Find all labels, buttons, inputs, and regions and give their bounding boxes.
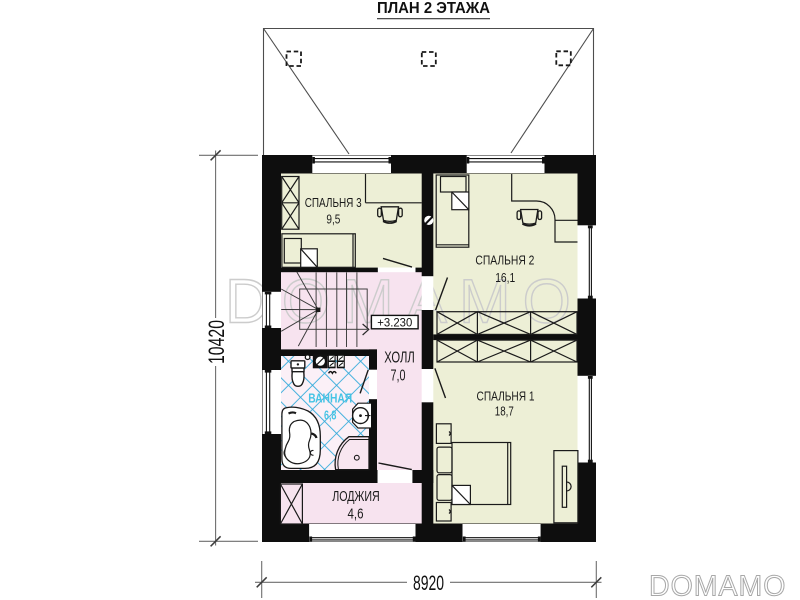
svg-text:ВАННАЯ: ВАННАЯ	[308, 390, 352, 405]
svg-text:8920: 8920	[413, 572, 444, 595]
svg-text:10420: 10420	[204, 320, 229, 364]
svg-text:СПАЛЬНЯ 2: СПАЛЬНЯ 2	[475, 253, 534, 268]
svg-text:DOMAMO: DOMAMO	[649, 571, 786, 600]
svg-text:4,6: 4,6	[348, 505, 364, 522]
svg-text:ПЛАН 2 ЭТАЖА: ПЛАН 2 ЭТАЖА	[377, 0, 490, 17]
svg-text:6,8: 6,8	[324, 407, 337, 422]
svg-text:СПАЛЬНЯ 3: СПАЛЬНЯ 3	[305, 195, 362, 210]
svg-text:+3.230: +3.230	[377, 316, 412, 330]
svg-text:9,5: 9,5	[326, 212, 340, 227]
svg-text:7,0: 7,0	[391, 368, 406, 385]
svg-text:16,1: 16,1	[495, 270, 515, 285]
svg-text:СПАЛЬНЯ 1: СПАЛЬНЯ 1	[477, 389, 535, 404]
svg-text:ЛОДЖИЯ: ЛОДЖИЯ	[332, 488, 380, 505]
svg-text:ХОЛЛ: ХОЛЛ	[384, 349, 415, 366]
svg-text:18,7: 18,7	[495, 404, 514, 419]
